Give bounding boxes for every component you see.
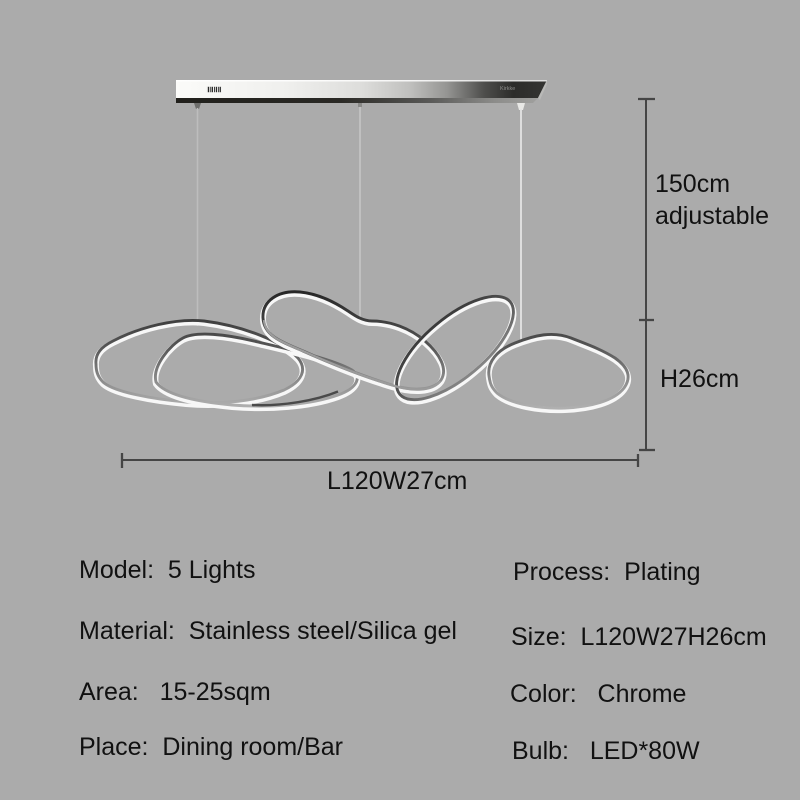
svg-text:Kirkke: Kirkke [500, 86, 515, 92]
